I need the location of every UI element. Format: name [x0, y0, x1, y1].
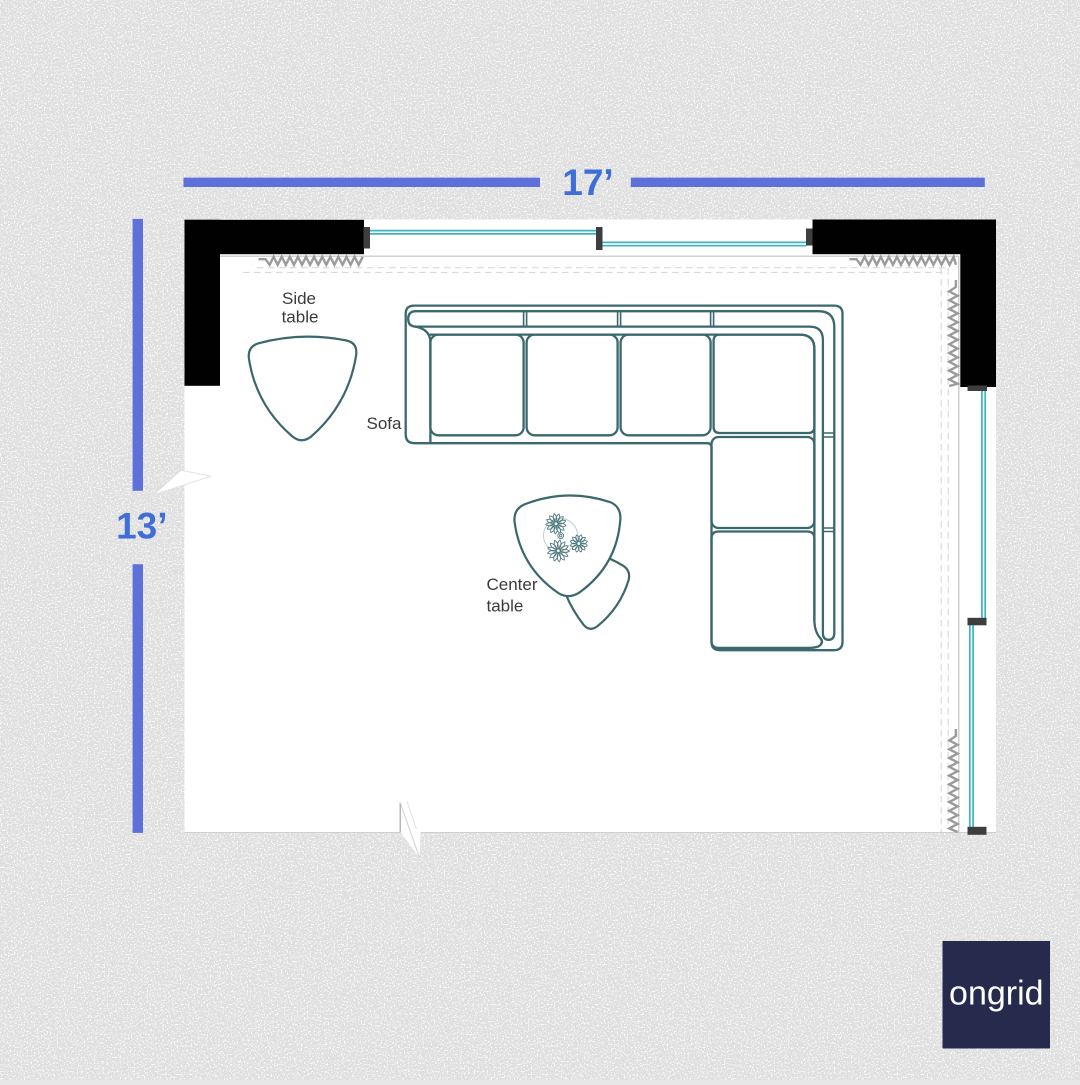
svg-text:Center: Center: [487, 575, 538, 594]
svg-text:Sofa: Sofa: [367, 414, 403, 433]
svg-text:table: table: [487, 597, 524, 616]
svg-text:ongrid: ongrid: [949, 975, 1044, 1013]
svg-text:13’: 13’: [116, 506, 167, 547]
svg-text:17’: 17’: [562, 162, 613, 203]
svg-text:Side: Side: [282, 289, 316, 308]
svg-text:table: table: [282, 307, 319, 326]
